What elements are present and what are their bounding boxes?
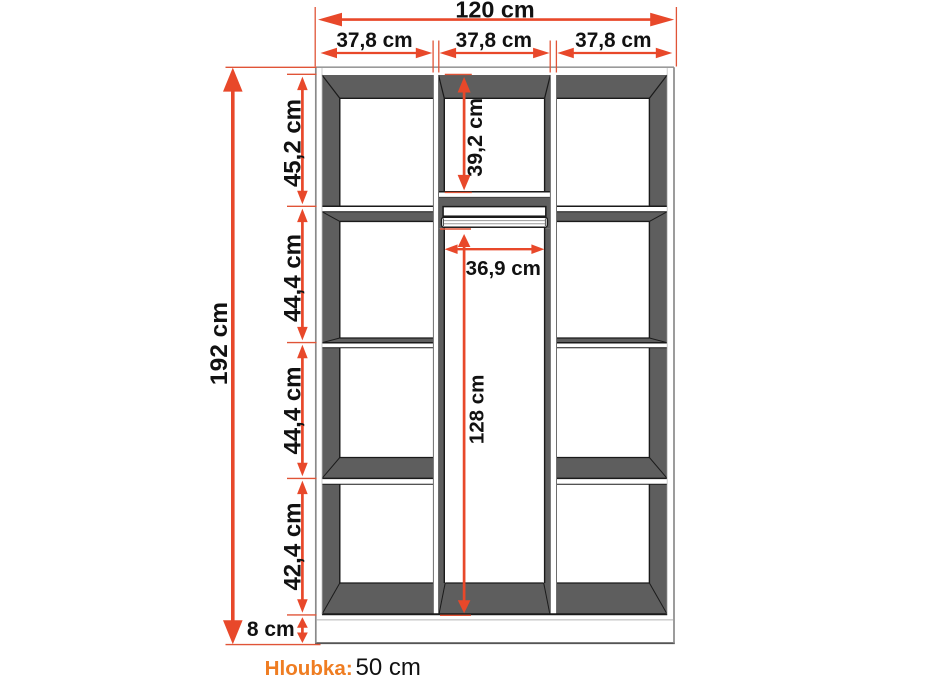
svg-text:50 cm: 50 cm [356, 654, 421, 681]
svg-text:37,8 cm: 37,8 cm [336, 29, 412, 52]
svg-text:42,4 cm: 42,4 cm [279, 502, 306, 590]
svg-text:37,8 cm: 37,8 cm [456, 29, 532, 52]
svg-text:36,9 cm: 36,9 cm [466, 257, 541, 280]
svg-text:192 cm: 192 cm [206, 302, 233, 385]
svg-text:39,2 cm: 39,2 cm [463, 98, 487, 177]
svg-text:45,2 cm: 45,2 cm [279, 99, 306, 187]
svg-text:37,8 cm: 37,8 cm [575, 29, 651, 52]
svg-text:Hloubka:: Hloubka: [265, 657, 353, 680]
svg-text:44,4 cm: 44,4 cm [279, 366, 306, 454]
svg-text:44,4 cm: 44,4 cm [279, 234, 306, 322]
svg-text:120 cm: 120 cm [455, 0, 534, 23]
svg-text:8 cm: 8 cm [247, 618, 295, 641]
svg-text:128 cm: 128 cm [466, 375, 489, 445]
